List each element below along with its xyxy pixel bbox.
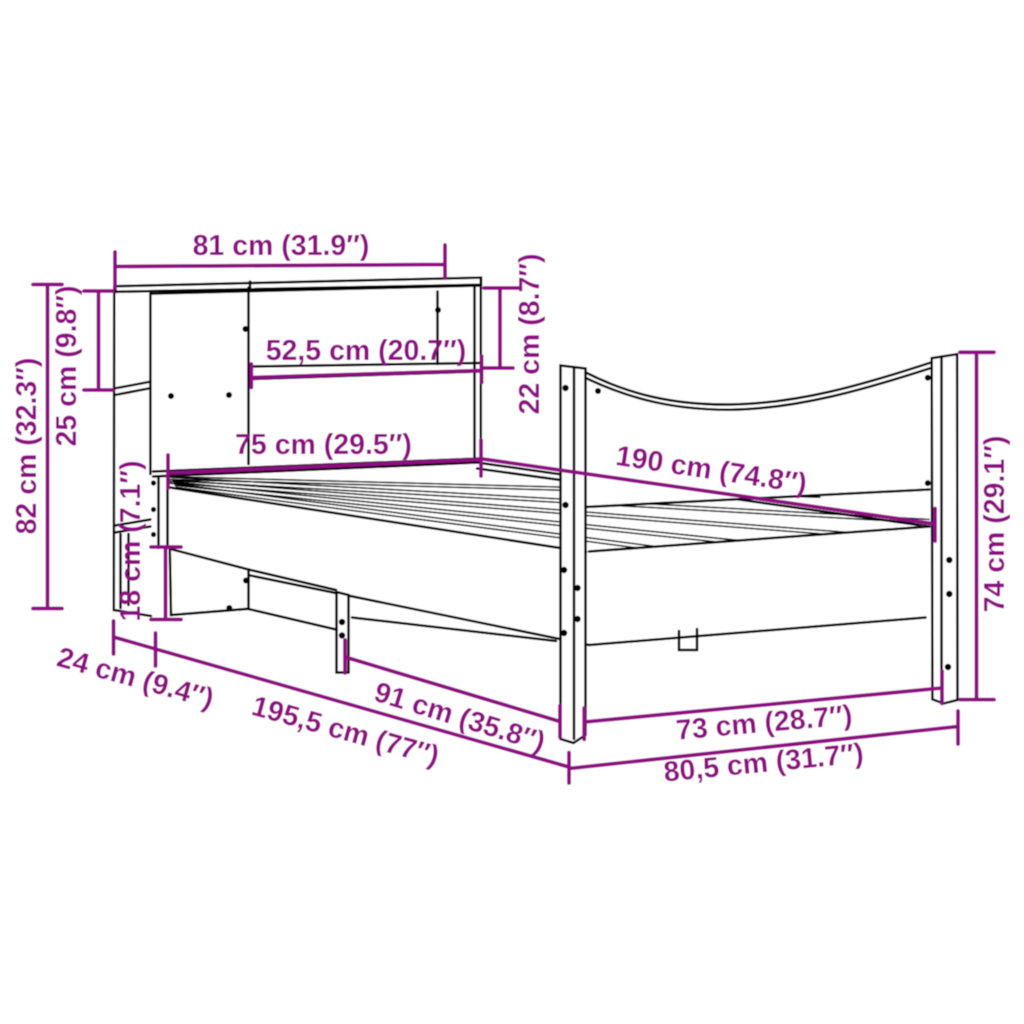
svg-text:81 cm (31.9″): 81 cm (31.9″) bbox=[193, 230, 370, 262]
svg-text:75 cm (29.5″): 75 cm (29.5″) bbox=[235, 429, 412, 461]
svg-text:74 cm (29.1″): 74 cm (29.1″) bbox=[979, 436, 1011, 613]
svg-text:52,5 cm (20.7″): 52,5 cm (20.7″) bbox=[266, 335, 467, 367]
svg-text:25 cm (9.8″): 25 cm (9.8″) bbox=[51, 286, 83, 447]
svg-text:18 cm (7.1″): 18 cm (7.1″) bbox=[115, 461, 147, 622]
svg-text:82 cm (32.3″): 82 cm (32.3″) bbox=[11, 358, 43, 535]
svg-text:22 cm (8.7″): 22 cm (8.7″) bbox=[514, 254, 546, 415]
